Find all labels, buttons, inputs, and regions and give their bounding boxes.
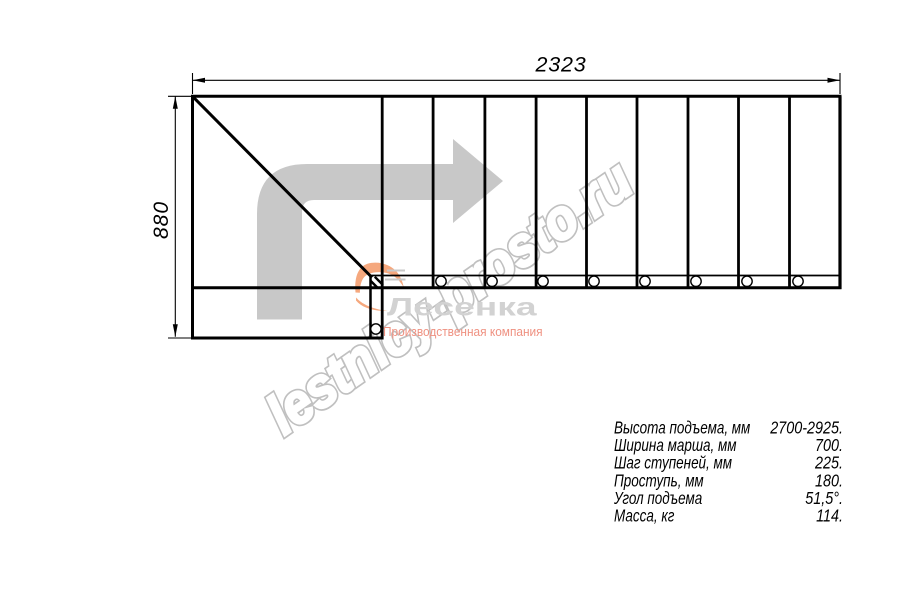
svg-text:Масса, кг: Масса, кг	[614, 507, 675, 526]
svg-text:Ширина марша, мм: Ширина марша, мм	[614, 436, 737, 455]
svg-text:Производственная компания: Производственная компания	[383, 325, 543, 340]
svg-text:Лесенка: Лесенка	[387, 293, 537, 321]
svg-text:Высота подъема, мм: Высота подъема, мм	[614, 419, 750, 438]
svg-text:2323: 2323	[534, 53, 586, 77]
svg-text:Проступь, мм: Проступь, мм	[614, 472, 704, 491]
svg-text:Шаг ступеней, мм: Шаг ступеней, мм	[614, 454, 732, 473]
svg-text:Угол подъема: Угол подъема	[613, 489, 702, 508]
svg-text:114.: 114.	[816, 506, 843, 526]
svg-text:880: 880	[150, 201, 173, 239]
